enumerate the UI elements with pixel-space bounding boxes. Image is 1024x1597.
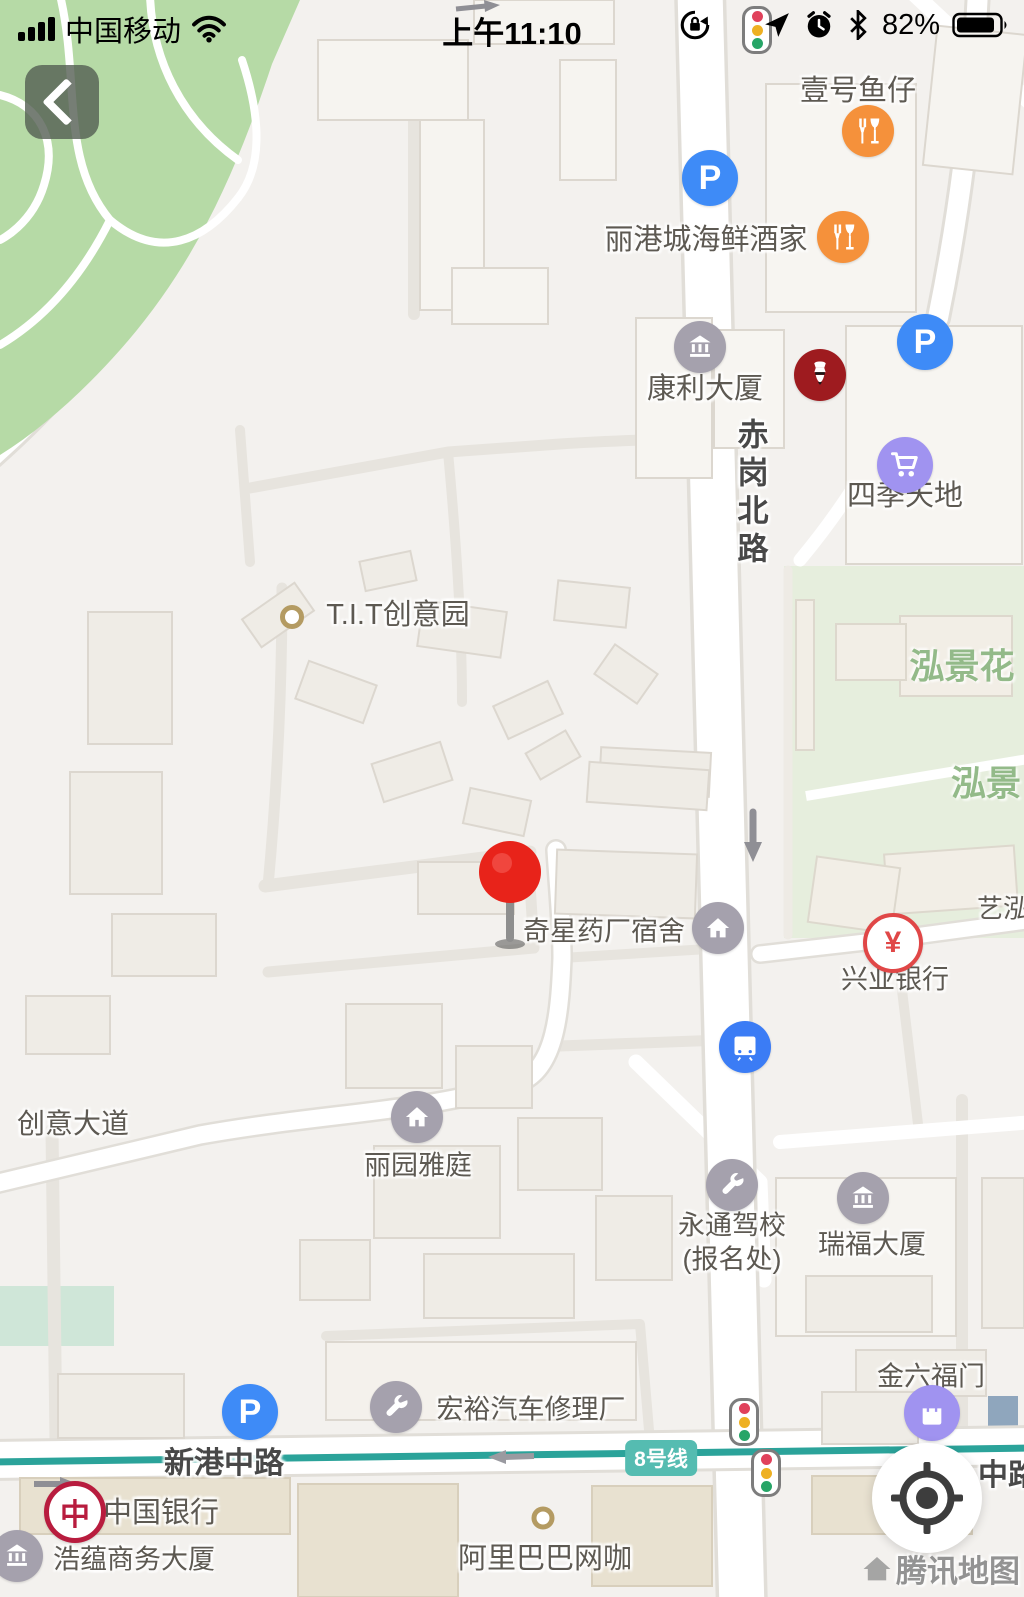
location-arrow-icon — [762, 10, 792, 40]
poi-label[interactable]: 浩蕴商务大厦 — [53, 1538, 215, 1577]
parking-letter: P — [699, 161, 722, 195]
home-icon[interactable] — [692, 902, 744, 954]
wrench-glyph — [718, 1171, 746, 1199]
parking-icon[interactable]: P — [682, 150, 738, 206]
traffic-light-icon — [729, 1398, 759, 1446]
chevron-left-icon — [42, 78, 90, 126]
house-glyph — [403, 1103, 431, 1131]
watermark-text: 腾讯地图 — [896, 1546, 1020, 1591]
house-glyph — [704, 914, 732, 942]
poi-label[interactable]: 中国银行 — [103, 1489, 219, 1531]
road-label: 新港中路 — [164, 1438, 284, 1482]
wrench-glyph — [382, 1393, 410, 1421]
restaurant-icon[interactable] — [842, 105, 894, 157]
columns-glyph — [686, 333, 714, 361]
bank-of-china-icon[interactable]: 中 — [44, 1481, 106, 1543]
poi-label[interactable]: 阿里巴巴网咖 — [458, 1535, 632, 1577]
fork-goblet-glyph — [853, 116, 883, 146]
shopping-cart-icon[interactable] — [877, 437, 933, 493]
poi-dot-icon[interactable] — [532, 1507, 555, 1530]
residential-green-area — [784, 566, 1024, 938]
shopping-bag-icon[interactable] — [904, 1385, 960, 1441]
area-label: 泓景花 — [909, 639, 1014, 690]
map-base — [0, 0, 1024, 1597]
poi-dot-icon[interactable] — [280, 605, 304, 629]
crosshair-icon — [889, 1460, 965, 1536]
colonel-face-glyph — [803, 358, 837, 392]
poi-label[interactable]: 壹号鱼仔 — [800, 67, 916, 109]
poi-label[interactable]: 丽园雅庭 — [364, 1144, 472, 1183]
train-glyph — [731, 1033, 759, 1061]
map-canvas[interactable]: P P P ¥ — [0, 0, 1024, 1597]
locate-button[interactable] — [872, 1443, 982, 1553]
restaurant-icon[interactable] — [817, 211, 869, 263]
bluetooth-icon — [846, 10, 870, 40]
road-label: 赤岗北路 — [728, 418, 773, 570]
status-bar: 中国移动 上午11:10 82% — [0, 0, 1024, 52]
yuan-bank-icon[interactable]: ¥ — [863, 913, 923, 973]
columns-glyph — [849, 1184, 877, 1212]
rotation-lock-icon — [678, 8, 712, 42]
location-pin — [472, 840, 548, 950]
alarm-clock-icon — [804, 10, 834, 40]
poi-label[interactable]: 丽港城海鲜酒家 — [604, 216, 807, 258]
cart-glyph — [890, 450, 920, 480]
tencent-maps-logo-icon — [860, 1552, 894, 1586]
parking-letter: P — [914, 325, 937, 359]
bag-glyph — [918, 1399, 946, 1427]
metro-line-badge: 8号线 — [625, 1440, 697, 1476]
poi-label[interactable]: T.I.T创意园 — [326, 591, 469, 633]
area-label: 艺泓 — [977, 889, 1024, 926]
parking-icon[interactable]: P — [222, 1384, 278, 1440]
yuan-symbol: ¥ — [885, 926, 902, 960]
columns-glyph — [3, 1542, 31, 1570]
parking-icon[interactable]: P — [897, 314, 953, 370]
battery-percent-label: 82% — [882, 9, 940, 42]
building-icon[interactable] — [837, 1172, 889, 1224]
back-button[interactable] — [25, 65, 99, 139]
building-icon[interactable] — [674, 321, 726, 373]
poi-label[interactable]: 宏裕汽车修理厂 — [437, 1388, 626, 1427]
battery-icon — [952, 10, 1010, 40]
boc-symbol: 中 — [60, 1490, 90, 1534]
parking-letter: P — [239, 1395, 262, 1429]
road-label: 创意大道 — [17, 1102, 129, 1142]
tencent-maps-watermark: 腾讯地图 — [860, 1546, 1020, 1591]
poi-label[interactable]: 瑞福大厦 — [818, 1223, 926, 1262]
wrench-icon[interactable] — [706, 1159, 758, 1211]
traffic-light-icon — [751, 1449, 781, 1497]
area-label: 泓景 — [951, 756, 1021, 807]
kfc-logo-icon[interactable] — [794, 349, 846, 401]
road-label: 中路 — [978, 1450, 1024, 1494]
metro-station-icon[interactable] — [719, 1021, 771, 1073]
poi-label[interactable]: (报名处) — [683, 1238, 782, 1277]
wrench-icon[interactable] — [370, 1381, 422, 1433]
home-icon[interactable] — [391, 1091, 443, 1143]
fork-goblet-glyph — [828, 222, 858, 252]
